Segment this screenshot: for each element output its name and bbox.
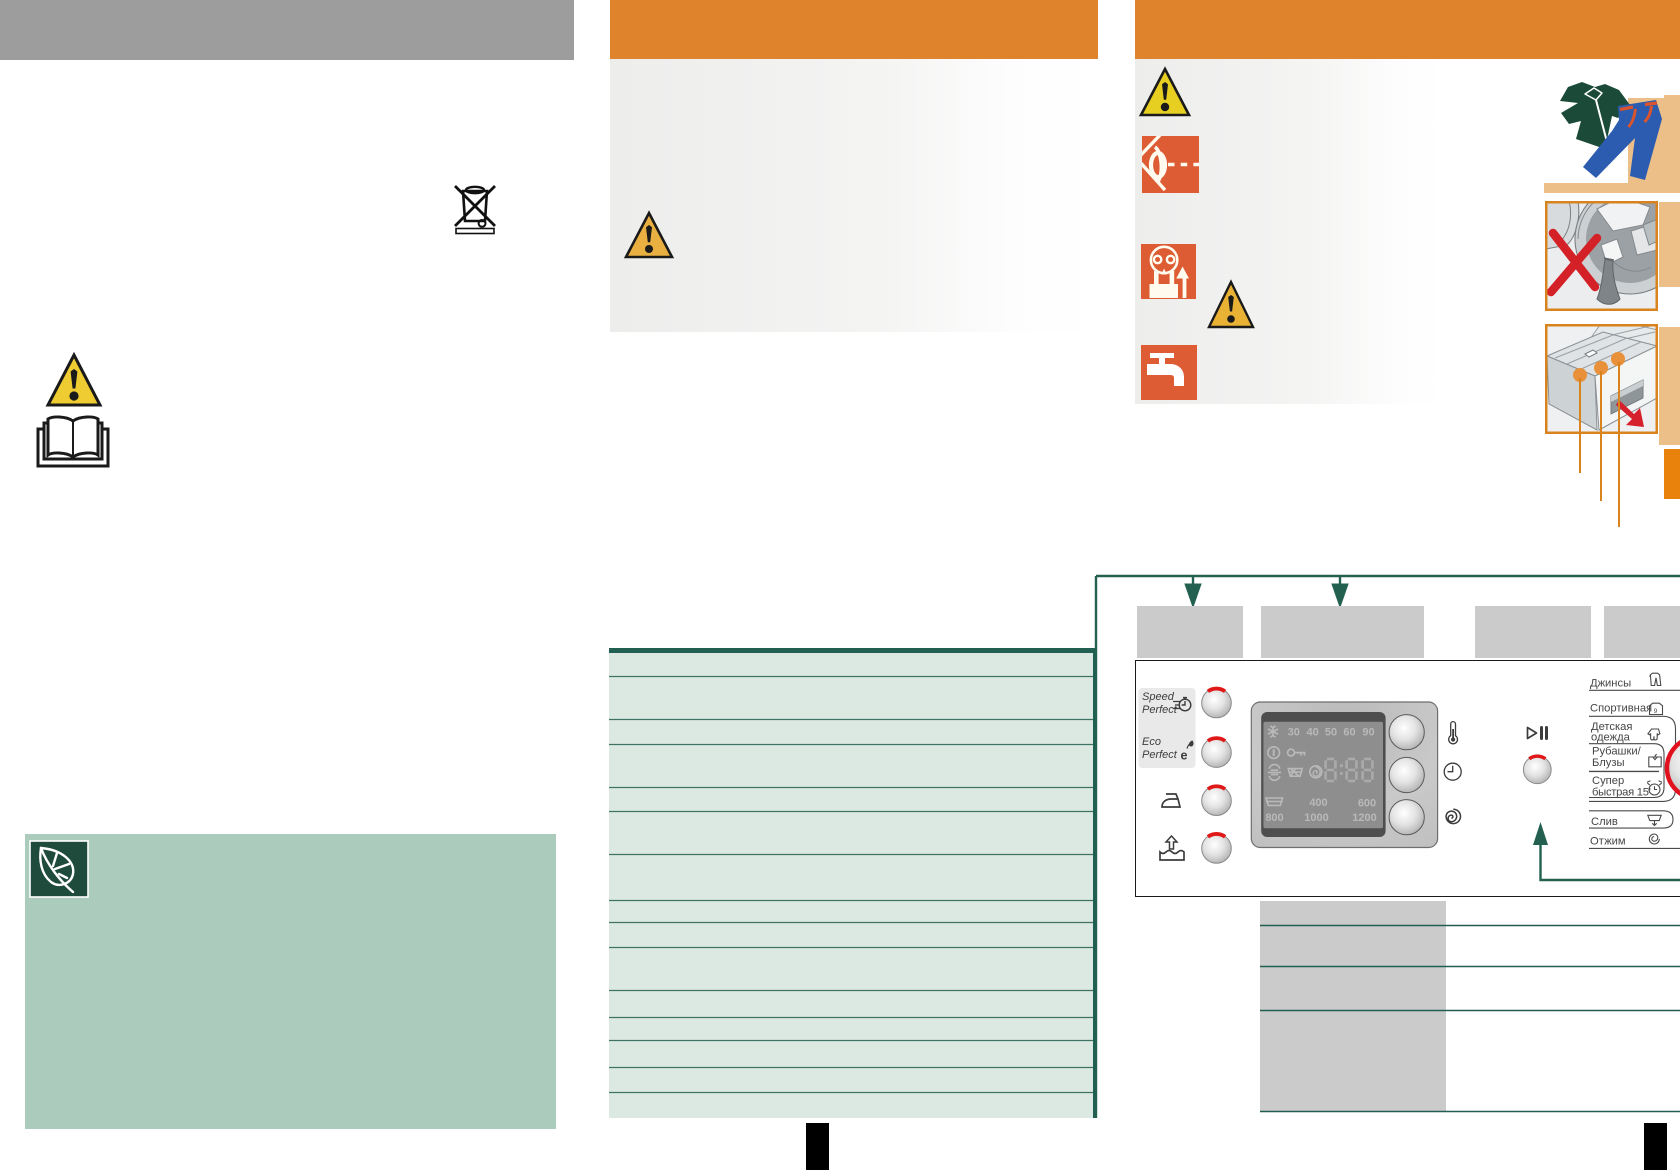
svg-text:9: 9 — [1654, 708, 1658, 715]
